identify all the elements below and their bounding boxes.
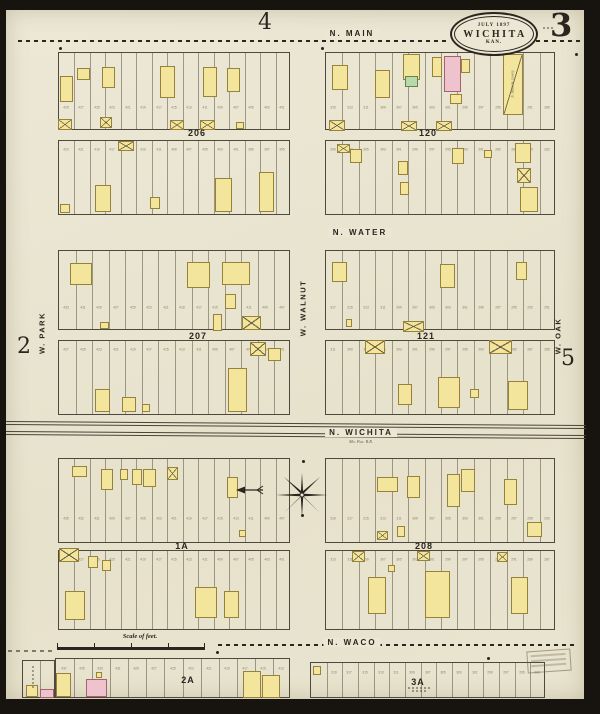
corner-dot (302, 460, 305, 463)
lot-number: 407 (278, 306, 286, 309)
building-footprint (222, 262, 250, 285)
lot-number: 301 (395, 148, 403, 151)
lot-number: 295 (494, 107, 502, 110)
lot-number: 405 (201, 148, 209, 151)
lot-line (474, 251, 475, 329)
lot-line (540, 53, 541, 129)
lot-number: 405 (247, 559, 255, 562)
lot-number: 417 (201, 518, 209, 521)
lot-number: 301 (477, 518, 485, 521)
lot-number: 287 (526, 348, 534, 351)
corner-dot (216, 651, 219, 654)
lot-number: 427 (77, 107, 85, 110)
building-footprint (346, 319, 352, 327)
block-number-label: 206 (188, 128, 206, 138)
lot-number: 291 (543, 306, 551, 309)
lot-line (490, 53, 491, 129)
lot-number: 299 (411, 148, 419, 151)
lot-number: 409 (212, 348, 220, 351)
lot-number: 411 (201, 559, 209, 562)
street-label-n-waco: N. WACO (323, 638, 380, 647)
lot-number: 435 (78, 668, 86, 671)
lot-number: 425 (79, 348, 87, 351)
lot-number: 413 (232, 518, 240, 521)
building-footprint (432, 57, 442, 77)
building-footprint (470, 389, 479, 398)
lot-number: 299 (486, 671, 494, 674)
lot-line (260, 53, 261, 129)
lot-number: 301 (461, 306, 469, 309)
scale-label: Scale of feet. (123, 633, 157, 640)
lot-number: 417 (155, 559, 163, 562)
lot-line (152, 551, 153, 629)
lot-line (358, 663, 359, 697)
building-footprint (517, 168, 531, 183)
block-number-label: 1A (175, 541, 189, 551)
lot-line (74, 53, 75, 129)
building-footprint (527, 522, 542, 537)
lot-number: 429 (96, 306, 104, 309)
building-footprint (225, 294, 236, 309)
city-block-strip (325, 458, 555, 543)
lot-line (425, 141, 426, 214)
lot-number: 425 (139, 518, 147, 521)
building-footprint (86, 679, 107, 697)
corner-dot (59, 47, 62, 50)
lot-line (389, 663, 390, 697)
lot-number: 299 (494, 518, 502, 521)
block-number-label: 120 (419, 128, 437, 138)
building-footprint (77, 68, 90, 80)
lot-number: 293 (543, 518, 551, 521)
lot-number: 421 (124, 559, 132, 562)
block-3a-note-squiggle-2 (412, 690, 428, 692)
building-footprint (425, 571, 450, 618)
building-footprint (352, 551, 365, 562)
lot-line (523, 53, 524, 129)
lot-number: 319 (329, 518, 337, 521)
lot-line (408, 141, 409, 214)
railroad-note: Mo. Pac. R.R. (349, 440, 373, 444)
building-footprint (102, 67, 115, 88)
lot-number: 309 (346, 348, 354, 351)
lot-number: 419 (139, 559, 147, 562)
lot-line (276, 551, 277, 629)
lot-line (474, 53, 475, 129)
lot-line (441, 141, 442, 214)
building-footprint (150, 197, 160, 209)
lot-number: 415 (170, 107, 178, 110)
block-number-label: 2A (181, 675, 195, 685)
lot-line (245, 141, 246, 214)
building-footprint (101, 469, 113, 490)
lot-line (201, 659, 202, 697)
lot-number: 427 (124, 518, 132, 521)
lot-line (198, 459, 199, 542)
lot-number: 307 (379, 559, 387, 562)
building-footprint (259, 172, 274, 212)
building-footprint (95, 389, 110, 412)
lot-line (74, 659, 75, 697)
lot-line (441, 251, 442, 329)
lot-number: 433 (96, 668, 104, 671)
lot-line (392, 459, 393, 542)
lot-number: 437 (60, 668, 68, 671)
lot-number: 313 (346, 107, 354, 110)
street-label-n-water: N. WATER (329, 228, 392, 237)
lot-number: 421 (112, 348, 120, 351)
lot-line (392, 53, 393, 129)
building-footprint (65, 591, 85, 620)
lot-number: 429 (62, 107, 70, 110)
lot-line (175, 251, 176, 329)
lot-number: 413 (139, 148, 147, 151)
building-footprint (400, 182, 409, 195)
building-footprint (227, 68, 240, 92)
lot-number: 413 (186, 107, 194, 110)
building-footprint (224, 591, 239, 618)
building-footprint (70, 263, 92, 285)
lot-number: 293 (477, 348, 485, 351)
lot-number: 303 (455, 671, 463, 674)
lot-line (359, 53, 360, 129)
building-footprint (250, 342, 266, 356)
lot-number: 429 (132, 668, 140, 671)
lot-line (76, 341, 77, 414)
lot-line (198, 141, 199, 214)
building-footprint (95, 185, 111, 212)
lot-line (74, 141, 75, 214)
building-footprint (60, 76, 73, 102)
lot-line (408, 459, 409, 542)
lot-line (342, 459, 343, 542)
lot-line (110, 659, 111, 697)
building-footprint (461, 469, 475, 492)
lot-number: 313 (377, 671, 385, 674)
lot-number: 415 (162, 348, 170, 351)
lot-line (375, 251, 376, 329)
lot-line (490, 459, 491, 542)
lot-line (540, 251, 541, 329)
lot-number: 403 (263, 559, 271, 562)
lot-number: 419 (186, 518, 194, 521)
lot-line (192, 341, 193, 414)
lot-number: 313 (379, 518, 387, 521)
lot-number: 305 (444, 518, 452, 521)
lot-number: 403 (263, 107, 271, 110)
lot-number: 415 (212, 306, 220, 309)
building-footprint (170, 120, 184, 130)
lot-number: 421 (124, 107, 132, 110)
building-footprint (59, 548, 79, 562)
lot-number: 315 (362, 518, 370, 521)
lot-line (237, 659, 238, 697)
lot-number: 431 (114, 668, 122, 671)
margin-scribble-vertical (32, 666, 34, 688)
lot-number: 301 (444, 107, 452, 110)
lot-number: 407 (232, 559, 240, 562)
adjacent-sheet-top: 4 (258, 10, 272, 35)
lot-number: 305 (411, 107, 419, 110)
lot-line (183, 551, 184, 629)
lot-line (540, 341, 541, 414)
lot-line (152, 53, 153, 129)
lot-line (392, 141, 393, 214)
lot-number: 309 (408, 671, 416, 674)
lot-number: 303 (379, 148, 387, 151)
lot-number: 431 (79, 306, 87, 309)
lot-line (92, 341, 93, 414)
lot-line (276, 141, 277, 214)
lot-line (507, 551, 508, 629)
building-footprint (102, 560, 111, 571)
building-footprint (72, 466, 87, 477)
lot-number: 417 (108, 148, 116, 151)
lot-line (392, 251, 393, 329)
lot-line (92, 251, 93, 329)
lot-line (274, 251, 275, 329)
lot-number: 419 (178, 306, 186, 309)
lot-number: 423 (187, 668, 195, 671)
lot-line (198, 53, 199, 129)
building-footprint (436, 121, 452, 131)
building-footprint (407, 476, 420, 498)
corner-dot (321, 47, 324, 50)
building-footprint (398, 161, 408, 175)
lot-line (342, 341, 343, 414)
lot-number: 417 (145, 348, 153, 351)
lot-line (392, 551, 393, 629)
lot-number: 309 (411, 518, 419, 521)
lot-line (507, 251, 508, 329)
building-footprint (365, 340, 385, 354)
lot-line (219, 659, 220, 697)
lot-line (507, 141, 508, 214)
lot-line (229, 459, 230, 542)
lot-line (146, 659, 147, 697)
block-number-label: 3A (411, 677, 425, 687)
building-footprint (447, 474, 460, 507)
lot-number: 427 (62, 348, 70, 351)
lot-line (260, 459, 261, 542)
lot-number: 305 (439, 671, 447, 674)
lot-number: 407 (228, 348, 236, 351)
city-blocks-layer: 4294274254234214194174154134114094074054… (0, 0, 600, 714)
lot-number: 299 (428, 348, 436, 351)
building-footprint (100, 117, 112, 128)
building-footprint (143, 469, 156, 487)
building-footprint (268, 348, 281, 361)
lot-line (125, 251, 126, 329)
lot-number: 283 (543, 148, 551, 151)
lot-number: 311 (379, 306, 387, 309)
building-footprint (377, 531, 388, 540)
lot-number: 423 (96, 348, 104, 351)
lot-line (441, 459, 442, 542)
building-footprint (397, 526, 405, 537)
lot-line (167, 551, 168, 629)
building-footprint (461, 59, 470, 73)
building-footprint (377, 477, 398, 492)
lot-line (359, 551, 360, 629)
lot-number: 415 (170, 559, 178, 562)
lot-number: 417 (155, 107, 163, 110)
lot-number: 397 (263, 148, 271, 151)
lot-number: 411 (195, 348, 203, 351)
lot-line (425, 53, 426, 129)
lot-number: 401 (278, 559, 286, 562)
adjacent-sheet-left: 2 (17, 334, 31, 359)
lot-line (359, 459, 360, 542)
lot-number: 297 (477, 107, 485, 110)
building-footprint (236, 122, 244, 129)
lot-number: 291 (510, 559, 518, 562)
building-footprint (228, 368, 247, 412)
lot-number: 419 (93, 148, 101, 151)
lot-line (540, 141, 541, 214)
lot-line (136, 141, 137, 214)
lot-line (225, 341, 226, 414)
lot-line (436, 663, 437, 697)
lot-number: 297 (502, 671, 510, 674)
lot-line (405, 663, 406, 697)
pointer-arrow-icon (236, 484, 264, 496)
corner-dot (487, 657, 490, 660)
lot-number: 429 (108, 518, 116, 521)
lot-number: 317 (345, 671, 353, 674)
lot-number: 413 (186, 559, 194, 562)
lot-number: 423 (145, 306, 153, 309)
lot-line (457, 551, 458, 629)
building-footprint (401, 121, 417, 131)
lot-number: 433 (77, 518, 85, 521)
lot-number: 311 (392, 671, 400, 674)
lot-line (214, 459, 215, 542)
lot-number: 401 (232, 148, 240, 151)
lot-line (142, 251, 143, 329)
building-footprint (398, 384, 412, 405)
building-footprint (332, 65, 348, 90)
building-footprint (132, 469, 142, 485)
lot-number: 317 (346, 518, 354, 521)
lot-line (359, 251, 360, 329)
lot-number: 303 (461, 518, 469, 521)
lot-number: 297 (510, 518, 518, 521)
sheet-number: 3 (550, 6, 572, 44)
lot-line (136, 551, 137, 629)
lot-line (167, 141, 168, 214)
lot-number: 297 (428, 148, 436, 151)
lot-number: 409 (217, 107, 225, 110)
lot-number: 317 (329, 306, 337, 309)
building-footprint (438, 377, 460, 408)
livery-building-label: N. Main St. Livery (511, 70, 515, 98)
lot-line (490, 551, 491, 629)
lot-number: 411 (245, 306, 253, 309)
street-label-n-main: N. MAIN (326, 29, 379, 38)
building-footprint (520, 187, 538, 212)
lot-number: 419 (223, 668, 231, 671)
building-footprint (262, 675, 280, 698)
lot-number: 401 (278, 107, 286, 110)
title-date: July 1897 (478, 23, 511, 28)
lot-line (109, 251, 110, 329)
lot-number: 403 (217, 148, 225, 151)
lot-number: 423 (62, 148, 70, 151)
lot-line (540, 551, 541, 629)
lot-number: 407 (232, 107, 240, 110)
building-footprint (417, 551, 430, 561)
lot-line (245, 551, 246, 629)
building-footprint (100, 322, 109, 329)
lot-line (452, 663, 453, 697)
lot-number: 395 (278, 148, 286, 151)
lot-number: 413 (277, 668, 285, 671)
lot-line (158, 251, 159, 329)
building-footprint (96, 672, 102, 678)
lot-line (245, 53, 246, 129)
building-footprint (329, 120, 345, 131)
building-footprint (405, 76, 418, 87)
lot-number: 409 (261, 306, 269, 309)
block-number-label: 121 (417, 331, 435, 341)
lot-line (90, 141, 91, 214)
lot-number: 425 (93, 107, 101, 110)
lot-number: 307 (424, 671, 432, 674)
lot-number: 307 (395, 107, 403, 110)
lot-number: 421 (77, 148, 85, 151)
lot-number: 305 (395, 559, 403, 562)
lot-number: 421 (162, 306, 170, 309)
street-label-w-park: W. PARK (38, 312, 47, 354)
title-state: KAN. (486, 40, 502, 45)
lot-line (408, 251, 409, 329)
lot-line (128, 659, 129, 697)
lot-number: 295 (526, 518, 534, 521)
lot-line (408, 551, 409, 629)
lot-number: 411 (201, 107, 209, 110)
building-footprint (203, 67, 217, 97)
lot-number: 411 (247, 518, 255, 521)
building-footprint (60, 204, 70, 213)
lot-line (183, 459, 184, 542)
lot-number: 409 (263, 518, 271, 521)
lot-number: 311 (395, 518, 403, 521)
building-footprint (516, 262, 527, 280)
lot-number: 399 (247, 148, 255, 151)
lot-number: 313 (329, 559, 337, 562)
lot-number: 309 (329, 148, 337, 151)
lot-number: 303 (428, 107, 436, 110)
building-footprint (504, 479, 517, 505)
lot-line (425, 251, 426, 329)
building-footprint (122, 397, 136, 412)
building-footprint (88, 556, 98, 568)
lot-number: 423 (155, 518, 163, 521)
building-footprint (508, 381, 528, 410)
lot-number: 409 (170, 148, 178, 151)
lot-line (158, 341, 159, 414)
lot-number: 427 (112, 306, 120, 309)
lot-line (499, 663, 500, 697)
lot-number: 413 (178, 348, 186, 351)
building-footprint (215, 178, 232, 212)
lot-line (327, 663, 328, 697)
lot-number: 421 (205, 668, 213, 671)
lot-number: 315 (346, 306, 354, 309)
lot-line (457, 251, 458, 329)
lot-number: 433 (62, 306, 70, 309)
